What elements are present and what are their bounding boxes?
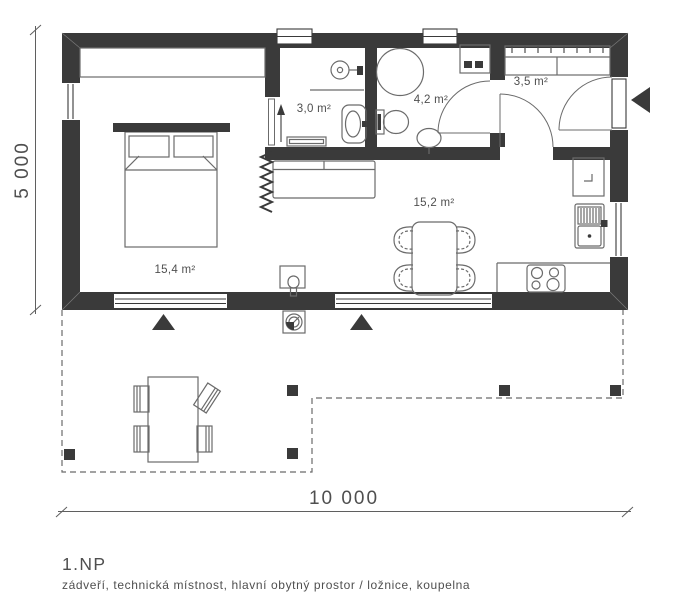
basin-tap bbox=[362, 121, 367, 127]
hall-closet bbox=[505, 46, 610, 75]
dim-value-width: 10 000 bbox=[309, 488, 379, 509]
rooms-caption: zádveří, technická místnost, hlavní obyt… bbox=[62, 578, 470, 592]
wall-left bbox=[62, 33, 80, 310]
door-hall-living-opening bbox=[500, 147, 553, 160]
bathroom-cabinet bbox=[460, 45, 490, 73]
wardrobe bbox=[80, 48, 265, 77]
room-label-bathroom: 4,2 m² bbox=[414, 94, 448, 106]
openings bbox=[62, 77, 628, 308]
wood-stove bbox=[280, 266, 305, 296]
terrace-table bbox=[148, 377, 198, 462]
window-left-opening bbox=[62, 83, 80, 120]
sink-tap bbox=[601, 220, 608, 227]
entry-marker-main bbox=[631, 87, 650, 113]
fridge bbox=[573, 158, 604, 196]
double-bed bbox=[125, 132, 217, 247]
terrace-post-4 bbox=[499, 385, 510, 396]
floorplan-page: 15,4 m² 3,0 m² 4,2 m² 3,5 m² 15,2 m² 5 0… bbox=[0, 0, 675, 600]
sofa bbox=[273, 161, 375, 198]
window-south2-opening bbox=[335, 294, 492, 308]
sink-drain bbox=[588, 234, 592, 238]
window-right-opening bbox=[610, 202, 628, 257]
room-label-living: 15,2 m² bbox=[413, 197, 454, 209]
terrace-post-3 bbox=[287, 448, 298, 459]
door-sliding-leaf bbox=[269, 99, 275, 145]
shower bbox=[377, 49, 424, 96]
kitchen-sink bbox=[575, 204, 604, 248]
ladder-zigzag bbox=[261, 152, 272, 212]
window-south1-opening bbox=[114, 294, 227, 308]
wall-right bbox=[610, 33, 628, 310]
boiler bbox=[331, 61, 358, 79]
wall-bedroom-technical bbox=[265, 48, 280, 97]
cooktop bbox=[527, 265, 565, 292]
terrace-post-2 bbox=[287, 385, 298, 396]
room-label-bedroom: 15,4 m² bbox=[154, 264, 195, 276]
glazing bbox=[68, 29, 626, 304]
room-label-hall: 3,5 m² bbox=[514, 76, 548, 88]
floor-title: 1.NP bbox=[62, 554, 107, 574]
cabinet-item-1 bbox=[464, 61, 472, 68]
door-bathroom-opening bbox=[490, 80, 505, 133]
terrace-chair-2 bbox=[134, 426, 149, 452]
dim-value-height: 5 000 bbox=[12, 141, 33, 199]
door-entrance-opening bbox=[610, 77, 628, 130]
wall-technical-bathroom bbox=[365, 48, 377, 147]
door-entrance bbox=[559, 77, 612, 130]
solid-marks bbox=[64, 61, 650, 460]
boiler-tap bbox=[357, 66, 363, 75]
chimney-fill bbox=[286, 322, 294, 330]
furniture bbox=[62, 45, 623, 472]
dining-table bbox=[412, 222, 457, 295]
wall-bathroom-hall-upper bbox=[490, 48, 505, 80]
entry-marker-south1 bbox=[152, 314, 175, 330]
wall-interior-horizontal-west bbox=[265, 147, 500, 160]
room-label-technical: 3,0 m² bbox=[297, 103, 331, 115]
cabinet-item-2 bbox=[475, 61, 483, 68]
terrace-post-1 bbox=[64, 449, 75, 460]
doormat bbox=[287, 137, 326, 146]
door-bathroom bbox=[438, 81, 490, 133]
door-hall-living bbox=[500, 94, 553, 147]
terrace-post-5 bbox=[610, 385, 621, 396]
terrace-chair-1 bbox=[134, 386, 149, 412]
dining-chairs bbox=[394, 227, 475, 291]
toilet-flush bbox=[378, 114, 382, 130]
terrace-outline bbox=[62, 310, 623, 472]
entry-marker-south2 bbox=[350, 314, 373, 330]
floorplan-drawing: 15,4 m² 3,0 m² 4,2 m² 3,5 m² 15,2 m² 5 0… bbox=[0, 0, 675, 600]
bed-headboard bbox=[113, 123, 230, 132]
terrace-chair-3 bbox=[197, 426, 212, 452]
